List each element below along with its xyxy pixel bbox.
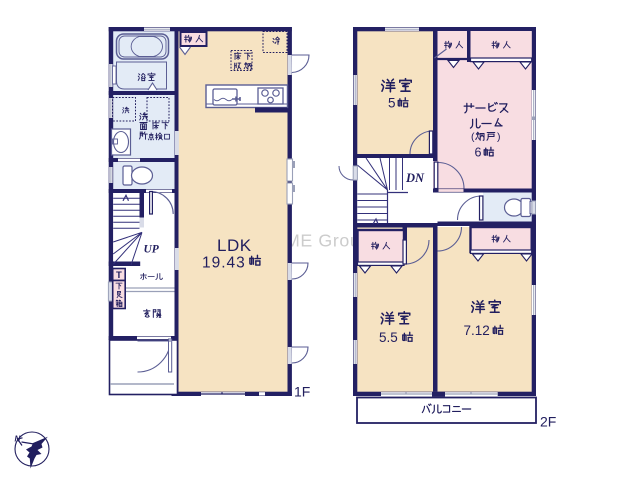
svg-text:19.43: 19.43 [202, 255, 246, 272]
svg-text:5.5: 5.5 [379, 330, 398, 345]
svg-text:N: N [15, 435, 21, 444]
svg-text:UP: UP [144, 244, 160, 256]
svg-text:2F: 2F [540, 414, 556, 430]
svg-text:(: ( [471, 131, 475, 143]
svg-text:LDK: LDK [217, 236, 252, 255]
svg-text:7.12: 7.12 [464, 323, 490, 338]
svg-text:6: 6 [475, 146, 482, 160]
svg-text:T: T [116, 270, 122, 281]
svg-text:1F: 1F [294, 384, 310, 400]
svg-text:5: 5 [388, 96, 396, 111]
svg-text:DN: DN [405, 171, 425, 185]
svg-text:): ) [497, 131, 501, 143]
